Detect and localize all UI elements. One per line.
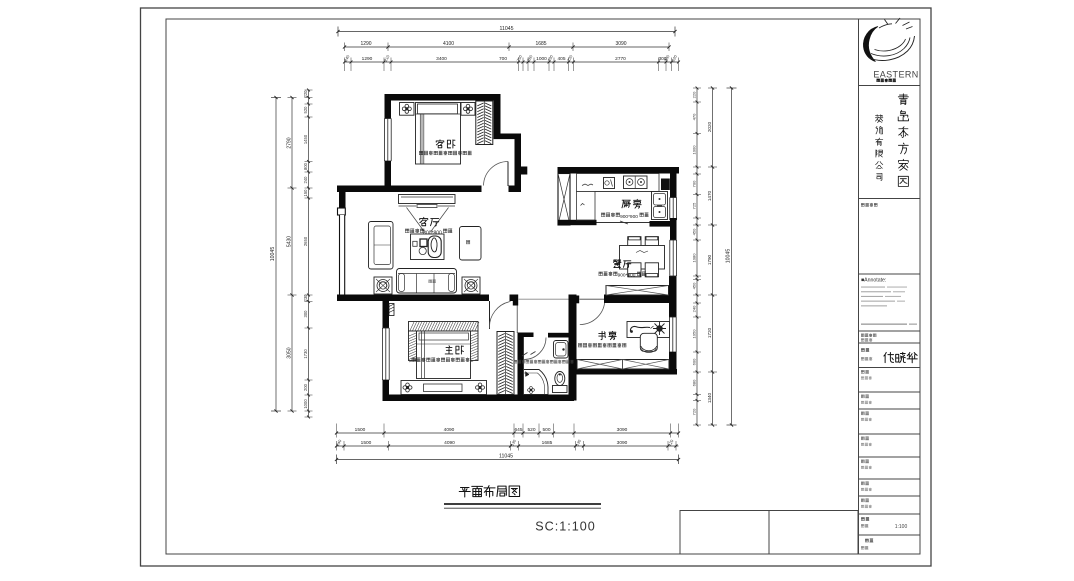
svg-text:220: 220 <box>670 53 678 62</box>
svg-text:240: 240 <box>303 176 308 184</box>
svg-text:645: 645 <box>514 427 522 433</box>
svg-text:230: 230 <box>546 53 554 62</box>
svg-text:220: 220 <box>692 91 697 98</box>
svg-text:1500: 1500 <box>361 440 372 446</box>
svg-text:1000: 1000 <box>303 399 308 409</box>
svg-text:240: 240 <box>343 53 351 62</box>
svg-text:470: 470 <box>692 113 697 120</box>
svg-text:3050: 3050 <box>287 347 293 358</box>
svg-text:800: 800 <box>303 162 308 170</box>
svg-text:1730: 1730 <box>303 349 308 359</box>
svg-text:1470: 1470 <box>707 190 712 201</box>
svg-text:1340: 1340 <box>707 392 712 403</box>
svg-text:220: 220 <box>303 90 308 98</box>
svg-text:1500: 1500 <box>355 427 366 433</box>
svg-text:1000: 1000 <box>692 145 697 155</box>
svg-text:2770: 2770 <box>615 56 626 62</box>
svg-text:300: 300 <box>303 310 308 318</box>
svg-text:520: 520 <box>527 427 535 433</box>
svg-text:1720: 1720 <box>707 327 712 338</box>
svg-text:1790: 1790 <box>707 254 712 265</box>
svg-text:700: 700 <box>692 180 697 187</box>
svg-text:680: 680 <box>692 379 697 386</box>
svg-text:130: 130 <box>509 438 517 447</box>
svg-text:700: 700 <box>499 56 507 62</box>
svg-text:SC:1:100: SC:1:100 <box>535 520 596 534</box>
svg-text:900*900: 900*900 <box>618 273 636 279</box>
svg-text:3090: 3090 <box>615 41 626 47</box>
svg-text:450: 450 <box>692 282 697 289</box>
svg-text:230: 230 <box>566 53 574 62</box>
svg-text:3090: 3090 <box>617 427 628 433</box>
svg-text:3400: 3400 <box>436 56 447 62</box>
svg-text:1080: 1080 <box>692 253 697 263</box>
svg-text:900*900: 900*900 <box>620 214 638 220</box>
svg-text:4090: 4090 <box>444 440 455 446</box>
svg-text:300: 300 <box>663 53 671 62</box>
svg-text:500: 500 <box>542 427 550 433</box>
svg-text:2790: 2790 <box>287 137 293 148</box>
svg-text:150: 150 <box>303 189 308 197</box>
svg-text:450: 450 <box>692 228 697 235</box>
svg-text:130: 130 <box>574 438 582 447</box>
svg-text:725: 725 <box>692 202 697 209</box>
svg-text:230: 230 <box>303 294 308 302</box>
svg-text:1000: 1000 <box>536 56 547 62</box>
svg-text:520: 520 <box>303 106 308 114</box>
svg-text:3090: 3090 <box>617 440 628 446</box>
svg-text:260: 260 <box>526 53 534 62</box>
svg-text:2650: 2650 <box>303 236 308 246</box>
svg-text:4090: 4090 <box>444 427 455 433</box>
svg-text:1290: 1290 <box>362 56 373 62</box>
svg-text:11045: 11045 <box>499 26 513 32</box>
svg-text:■Annotate:: ■Annotate: <box>861 278 886 284</box>
svg-text:1050: 1050 <box>692 329 697 339</box>
svg-text:600: 600 <box>692 358 697 365</box>
svg-text:2020: 2020 <box>707 121 712 132</box>
svg-text:120: 120 <box>667 438 675 447</box>
svg-text:210: 210 <box>383 53 391 62</box>
svg-text:1685: 1685 <box>535 41 546 47</box>
svg-text:EASTERN: EASTERN <box>873 70 918 80</box>
svg-text:240: 240 <box>692 305 697 312</box>
svg-text:11045: 11045 <box>499 454 513 460</box>
svg-text:1685: 1685 <box>542 440 553 446</box>
svg-text:1450: 1450 <box>303 134 308 144</box>
svg-text:1:100: 1:100 <box>895 524 908 530</box>
svg-text:4100: 4100 <box>443 41 454 47</box>
svg-text:5430: 5430 <box>287 236 293 247</box>
svg-text:405: 405 <box>557 56 565 62</box>
svg-text:10045: 10045 <box>726 249 732 264</box>
svg-text:240: 240 <box>335 438 343 447</box>
svg-text:1290: 1290 <box>360 41 371 47</box>
svg-text:10045: 10045 <box>270 247 276 262</box>
svg-text:750: 750 <box>515 53 523 62</box>
svg-text:720: 720 <box>692 408 697 415</box>
svg-text:200: 200 <box>303 383 308 391</box>
